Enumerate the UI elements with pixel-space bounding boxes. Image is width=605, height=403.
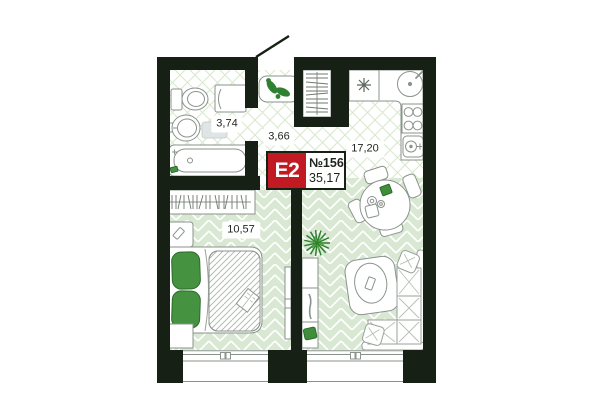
blanket (209, 251, 260, 331)
bed-icon (168, 247, 262, 333)
toilet-icon (171, 88, 208, 110)
shoe-mat-icon (259, 76, 299, 102)
coffee-table-icon (343, 255, 400, 316)
hall-closet-icon (303, 70, 331, 117)
wall-tv-icon (285, 267, 291, 339)
room-label-bedroom: 10,57 (222, 222, 260, 239)
unit-number: №156 (309, 156, 344, 170)
floorplan-drawing (0, 0, 605, 403)
small-sink-icon (403, 136, 423, 157)
window-living (307, 350, 403, 383)
bathtub-icon (169, 145, 251, 176)
unit-area: 35,17 (309, 171, 344, 185)
stove-icon (402, 104, 423, 133)
entry-door-swing (256, 36, 289, 57)
wardrobe-icon (166, 190, 255, 214)
room-label-hallway: 3,66 (263, 129, 294, 146)
room-label-kitchen-living: 17,20 (346, 141, 384, 158)
unit-badge: E2 №156 35,17 (266, 151, 346, 190)
hob-symbol (357, 78, 371, 92)
window-bedroom (183, 350, 268, 383)
tv-console-icon (302, 258, 318, 348)
nightstand-icon (167, 222, 193, 247)
washing-machine-icon (215, 85, 246, 112)
unit-info: №156 35,17 (306, 153, 344, 188)
floorplan: 3,74 3,66 17,20 10,57 E2 №156 35,17 (0, 0, 605, 403)
bedroom-items (164, 190, 262, 348)
room-label-bathroom: 3,74 (211, 116, 242, 133)
unit-type-label: E2 (268, 153, 306, 188)
